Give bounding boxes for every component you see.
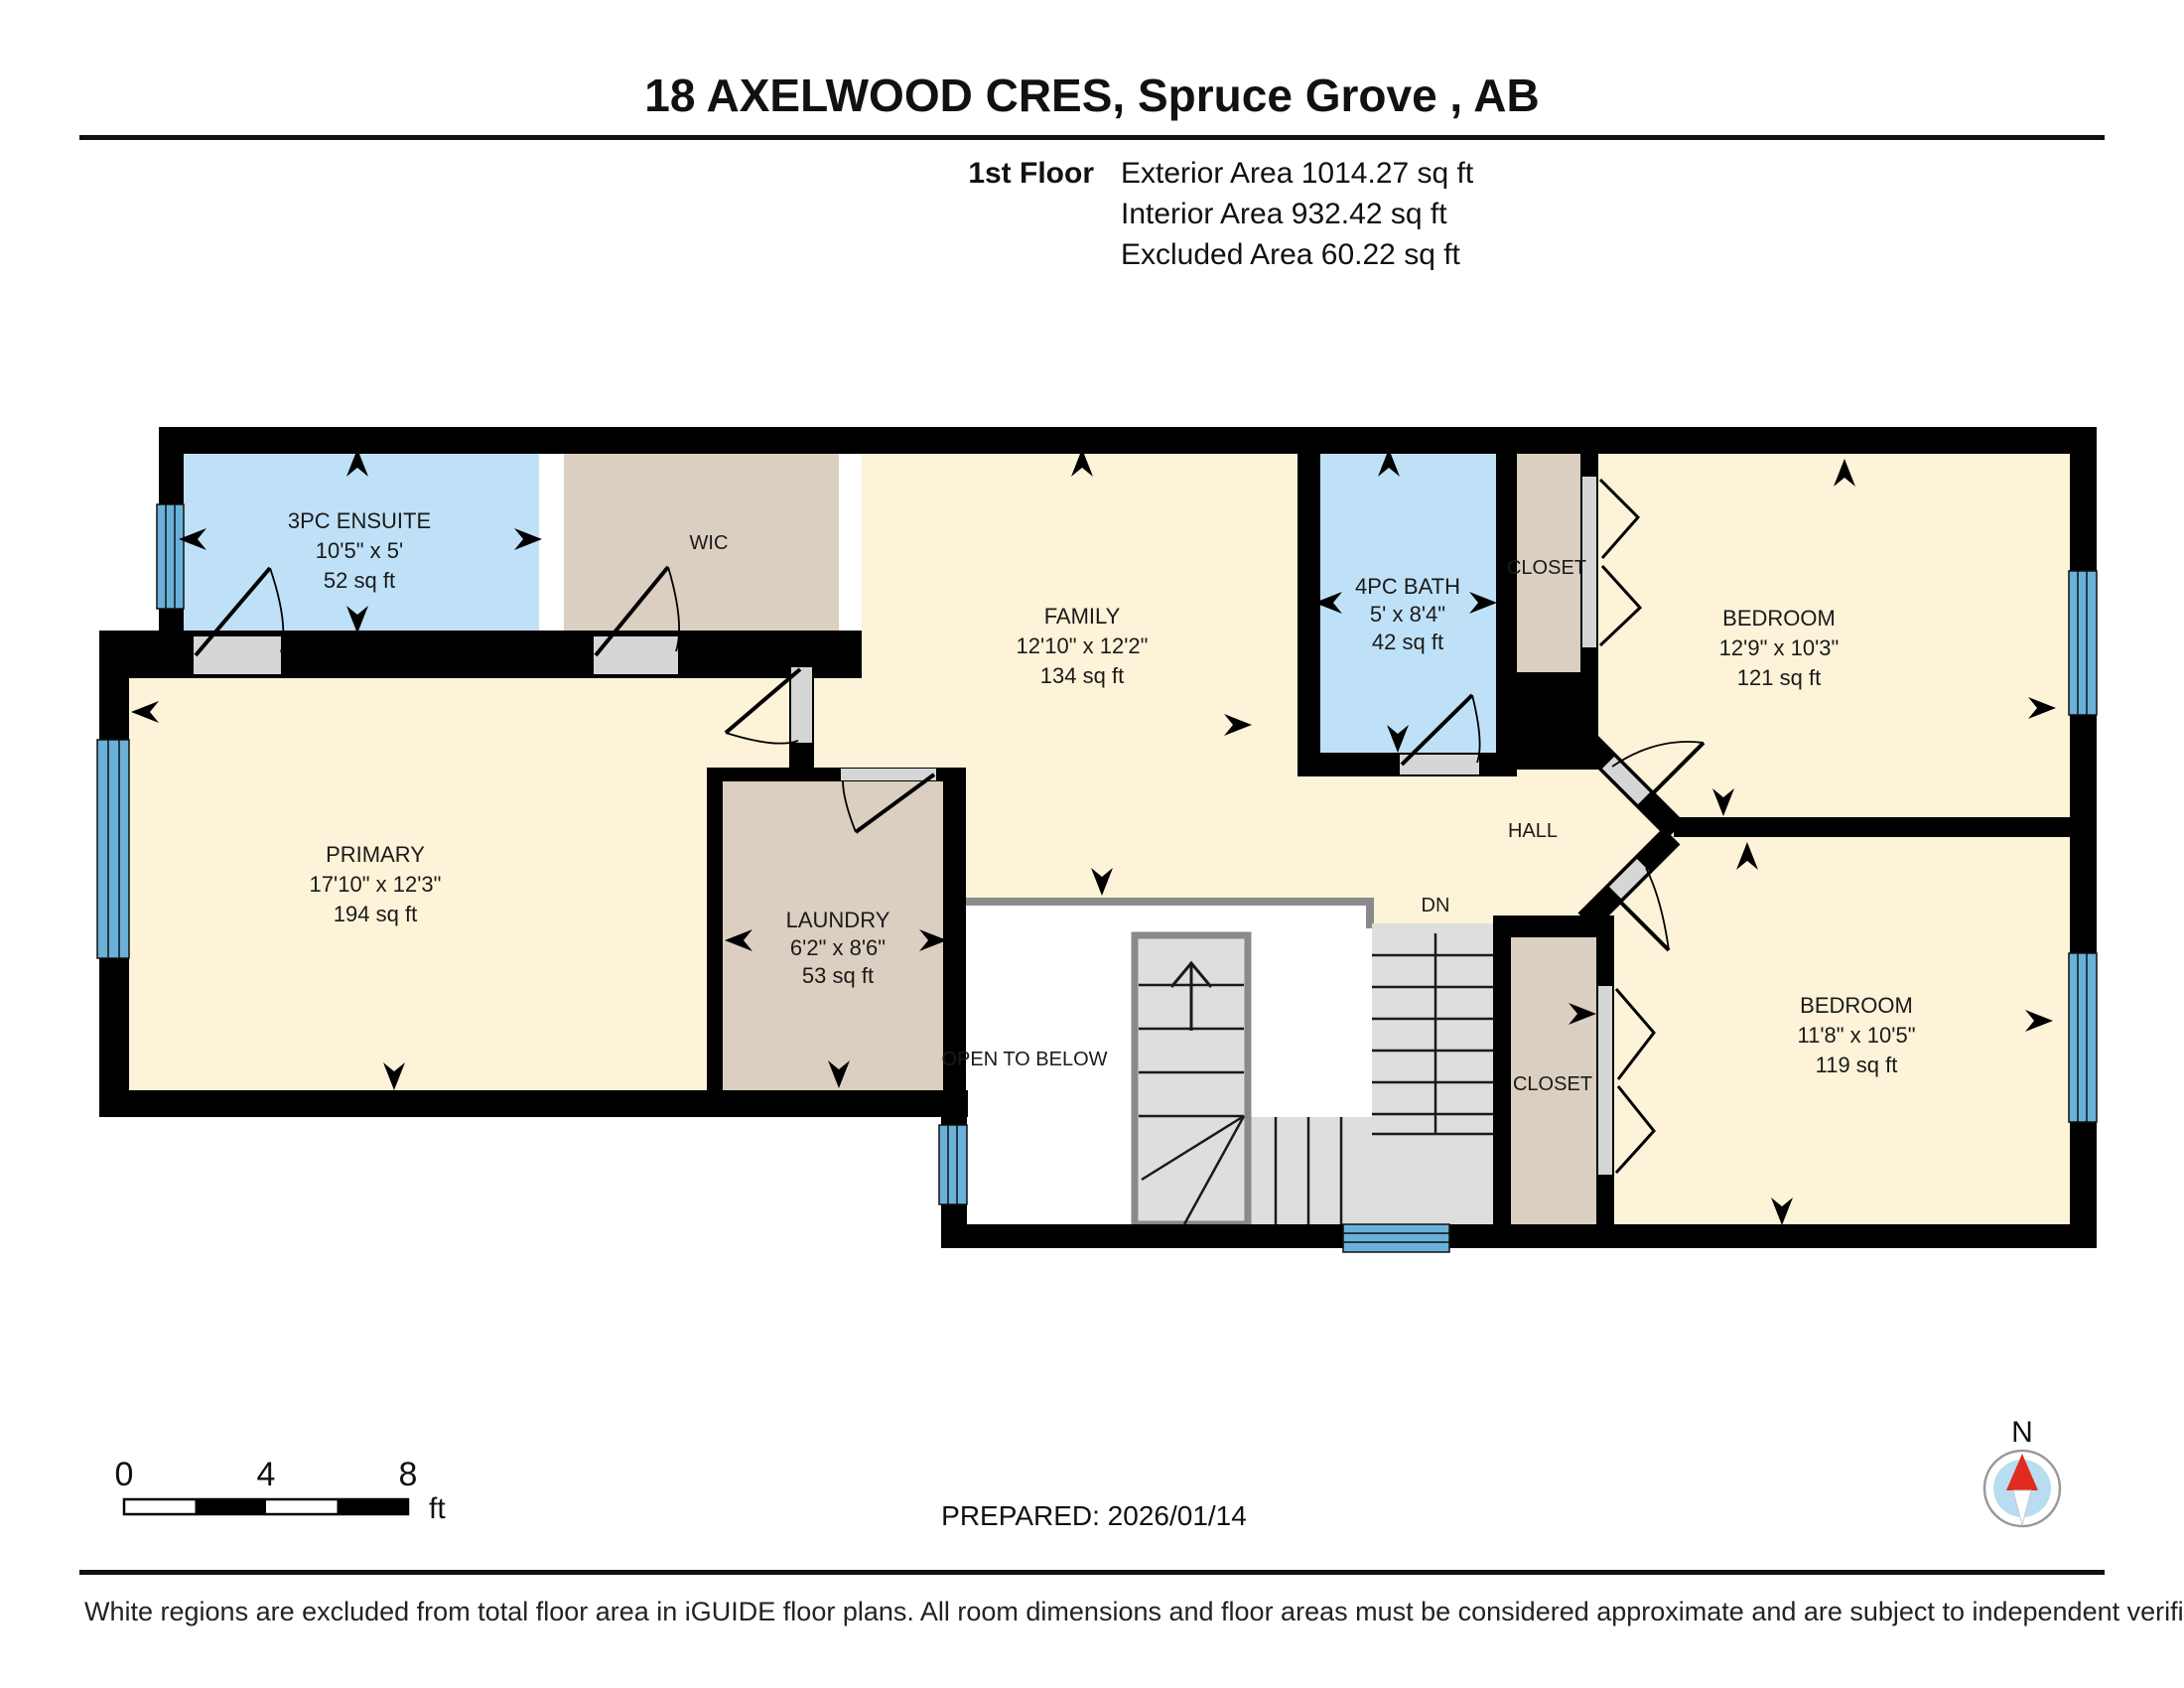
page-title: 18 AXELWOOD CRES, Spruce Grove , AB bbox=[644, 70, 1539, 121]
window-bedroom1-right bbox=[2069, 571, 2097, 715]
compass-north-label: N bbox=[2011, 1416, 2033, 1449]
wall-laundry-left bbox=[707, 768, 723, 1090]
scale-tick-0: 0 bbox=[115, 1456, 134, 1493]
prepared-date: PREPARED: 2026/01/14 bbox=[941, 1500, 1247, 1531]
wall-laundry-right bbox=[943, 768, 966, 1092]
wall-primary-laundry-bottom bbox=[99, 1090, 968, 1117]
window-bedroom2-right bbox=[2069, 953, 2097, 1122]
wall-family-bath bbox=[1297, 454, 1320, 776]
svg-text:10'5" x 5': 10'5" x 5' bbox=[316, 538, 403, 563]
svg-text:11'8" x 10'5": 11'8" x 10'5" bbox=[1797, 1023, 1915, 1048]
floorplan-page: 18 AXELWOOD CRES, Spruce Grove , AB 1st … bbox=[0, 0, 2184, 1688]
svg-text:17'10" x 12'3": 17'10" x 12'3" bbox=[310, 872, 442, 897]
window-stairs-bottom bbox=[1343, 1224, 1449, 1252]
threshold-closet-bottom bbox=[1598, 986, 1612, 1175]
svg-text:BEDROOM: BEDROOM bbox=[1722, 606, 1836, 631]
svg-text:LAUNDRY: LAUNDRY bbox=[786, 908, 890, 932]
svg-text:12'9" x 10'3": 12'9" x 10'3" bbox=[1719, 635, 1840, 660]
svg-text:42 sq ft: 42 sq ft bbox=[1372, 630, 1443, 654]
window-primary-left bbox=[97, 740, 129, 958]
window-openbelow-left bbox=[939, 1125, 967, 1204]
svg-text:FAMILY: FAMILY bbox=[1044, 604, 1121, 629]
wall-closet-bottom-left bbox=[1493, 915, 1511, 1224]
threshold-bath bbox=[1400, 755, 1479, 774]
label-closet-top: CLOSET bbox=[1507, 557, 1586, 579]
wall-hall-corner bbox=[1496, 672, 1598, 770]
window-ensuite-left bbox=[157, 504, 184, 609]
compass-icon: N bbox=[1984, 1416, 2060, 1526]
interior-area: Interior Area 932.42 sq ft bbox=[1121, 198, 1447, 230]
wall-right bbox=[2070, 427, 2097, 1248]
wall-top bbox=[159, 427, 2097, 454]
label-hall: HALL bbox=[1508, 820, 1558, 842]
label-wic: WIC bbox=[690, 532, 729, 554]
scale-tick-4: 4 bbox=[257, 1456, 276, 1493]
svg-text:12'10" x 12'2": 12'10" x 12'2" bbox=[1017, 633, 1149, 658]
svg-text:6'2" x 8'6": 6'2" x 8'6" bbox=[790, 935, 886, 960]
scale-bar: 0 4 8 ft bbox=[115, 1456, 447, 1525]
scale-bar-seg4 bbox=[338, 1499, 409, 1514]
svg-text:121 sq ft: 121 sq ft bbox=[1737, 665, 1821, 690]
header: 18 AXELWOOD CRES, Spruce Grove , AB 1st … bbox=[79, 70, 2105, 271]
exterior-area: Exterior Area 1014.27 sq ft bbox=[1121, 157, 1474, 190]
label-closet-bottom: CLOSET bbox=[1513, 1073, 1592, 1095]
svg-text:119 sq ft: 119 sq ft bbox=[1816, 1053, 1898, 1077]
wall-bedroom-divider bbox=[1674, 817, 2070, 837]
floor-label: 1st Floor bbox=[968, 157, 1094, 190]
svg-text:4PC BATH: 4PC BATH bbox=[1355, 574, 1460, 599]
svg-text:5' x 8'4": 5' x 8'4" bbox=[1370, 602, 1445, 627]
svg-text:134 sq ft: 134 sq ft bbox=[1040, 663, 1124, 688]
svg-text:BEDROOM: BEDROOM bbox=[1800, 993, 1913, 1018]
scale-bar-seg2 bbox=[196, 1499, 267, 1514]
header-rule bbox=[79, 135, 2105, 140]
label-stairs-dn: DN bbox=[1422, 895, 1450, 916]
label-open-below: OPEN TO BELOW bbox=[941, 1049, 1107, 1070]
svg-text:52 sq ft: 52 sq ft bbox=[324, 568, 395, 593]
scale-tick-8: 8 bbox=[399, 1456, 418, 1493]
disclaimer-text: White regions are excluded from total fl… bbox=[84, 1597, 2184, 1626]
svg-text:PRIMARY: PRIMARY bbox=[326, 842, 425, 867]
excluded-area: Excluded Area 60.22 sq ft bbox=[1121, 238, 1461, 271]
svg-text:3PC ENSUITE: 3PC ENSUITE bbox=[288, 508, 431, 533]
footer-rule bbox=[79, 1570, 2105, 1575]
threshold-laundry bbox=[841, 769, 936, 780]
threshold-primary bbox=[791, 667, 812, 743]
svg-text:53 sq ft: 53 sq ft bbox=[802, 963, 874, 988]
footer: 0 4 8 ft PREPARED: 2026/01/14 N White re… bbox=[79, 1416, 2184, 1626]
scale-unit: ft bbox=[429, 1492, 446, 1525]
wall-bottom bbox=[941, 1224, 2097, 1248]
svg-text:194 sq ft: 194 sq ft bbox=[334, 902, 417, 926]
